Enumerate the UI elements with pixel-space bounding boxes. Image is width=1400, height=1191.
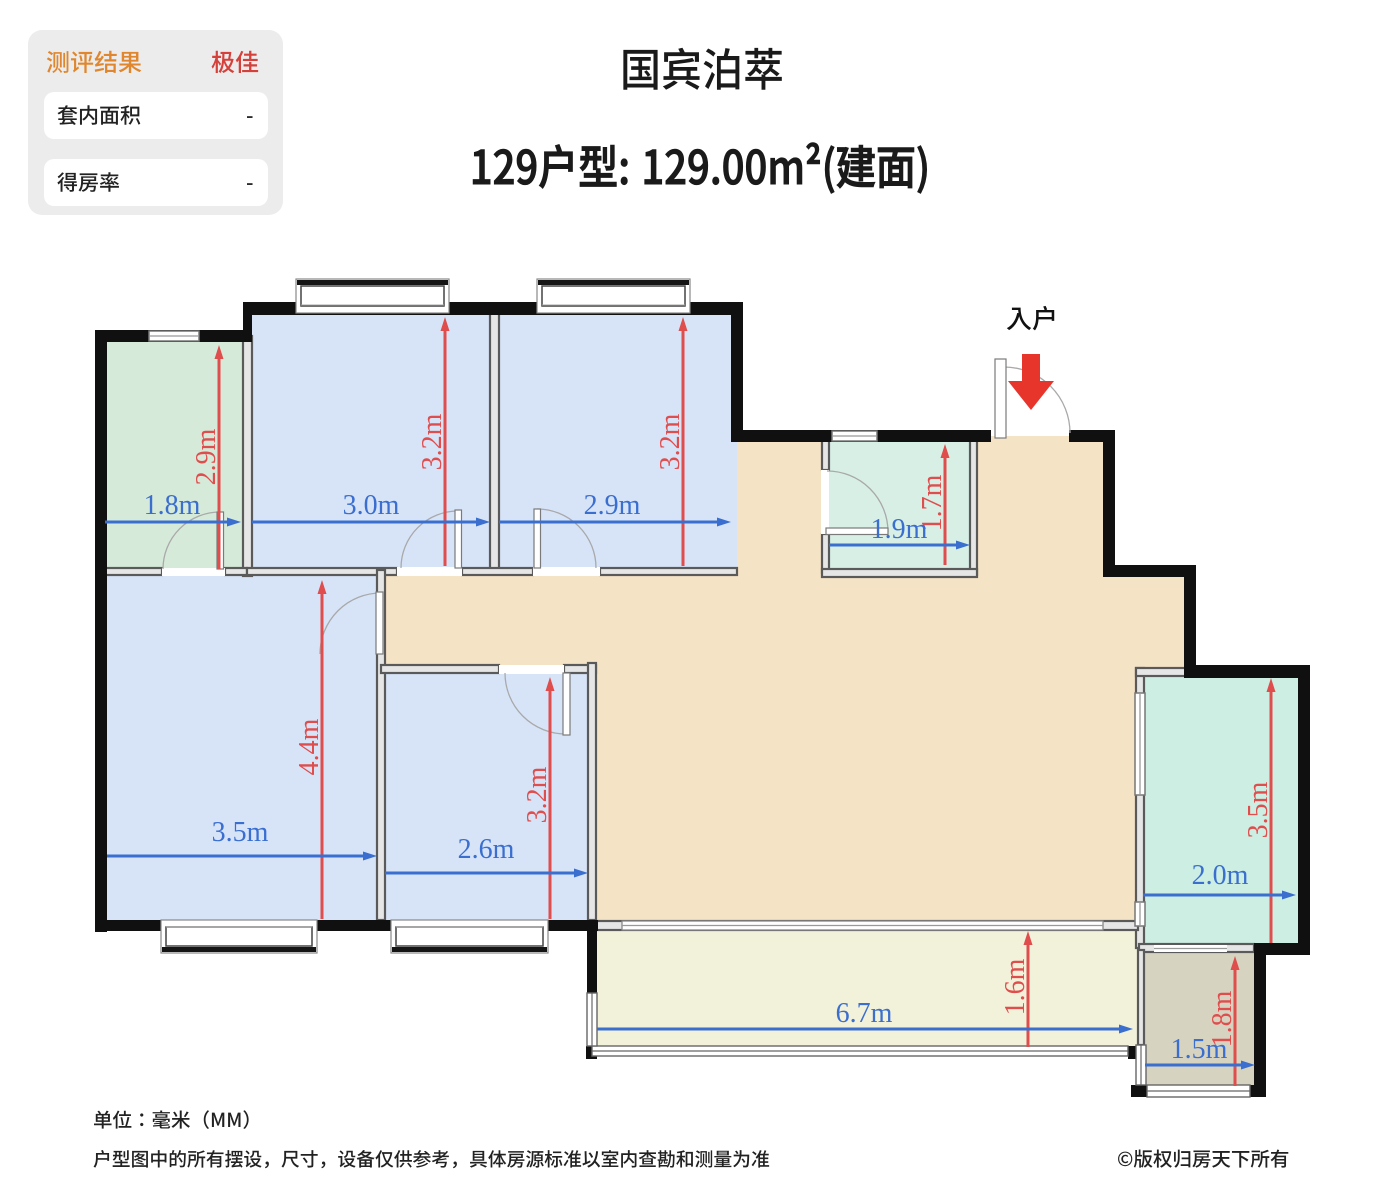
svg-text:3.2m: 3.2m (522, 766, 553, 823)
svg-text:4.4m: 4.4m (294, 718, 325, 775)
svg-text:3.2m: 3.2m (655, 413, 686, 470)
svg-text:2.9m: 2.9m (584, 490, 641, 521)
svg-text:3.5m: 3.5m (212, 817, 269, 848)
svg-text:1.5m: 1.5m (1171, 1034, 1228, 1065)
svg-text:1.9m: 1.9m (871, 514, 928, 545)
svg-text:1.6m: 1.6m (1000, 958, 1031, 1015)
svg-text:3.0m: 3.0m (343, 490, 400, 521)
svg-text:2.0m: 2.0m (1192, 860, 1249, 891)
svg-text:1.8m: 1.8m (144, 490, 201, 521)
svg-text:3.2m: 3.2m (417, 413, 448, 470)
svg-text:2.6m: 2.6m (458, 834, 515, 865)
svg-text:3.5m: 3.5m (1243, 781, 1274, 838)
svg-text:6.7m: 6.7m (836, 998, 893, 1029)
svg-text:2.9m: 2.9m (191, 428, 222, 485)
